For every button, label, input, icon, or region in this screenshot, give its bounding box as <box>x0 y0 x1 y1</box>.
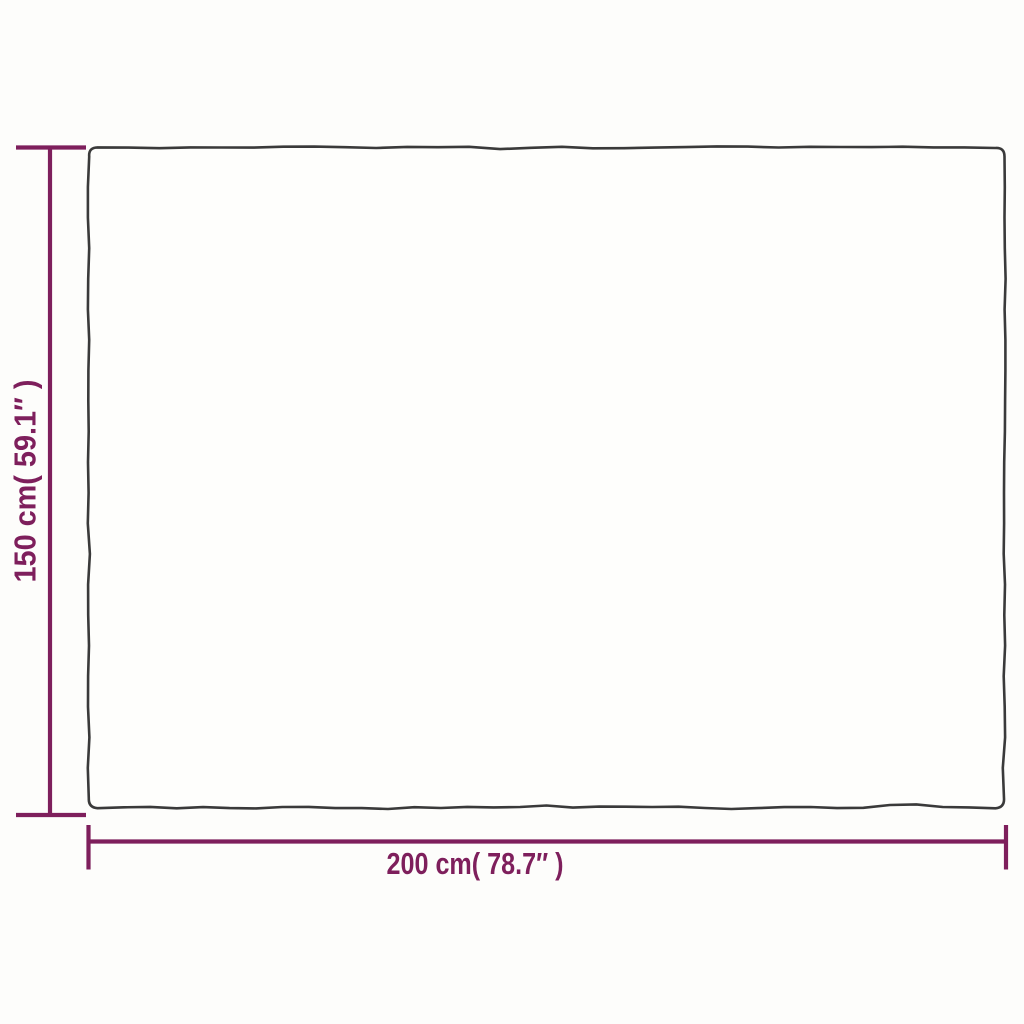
svg-text:150 cm( 59.1″ ): 150 cm( 59.1″ ) <box>9 380 43 583</box>
svg-text:200 cm( 78.7″ ): 200 cm( 78.7″ ) <box>387 847 564 881</box>
